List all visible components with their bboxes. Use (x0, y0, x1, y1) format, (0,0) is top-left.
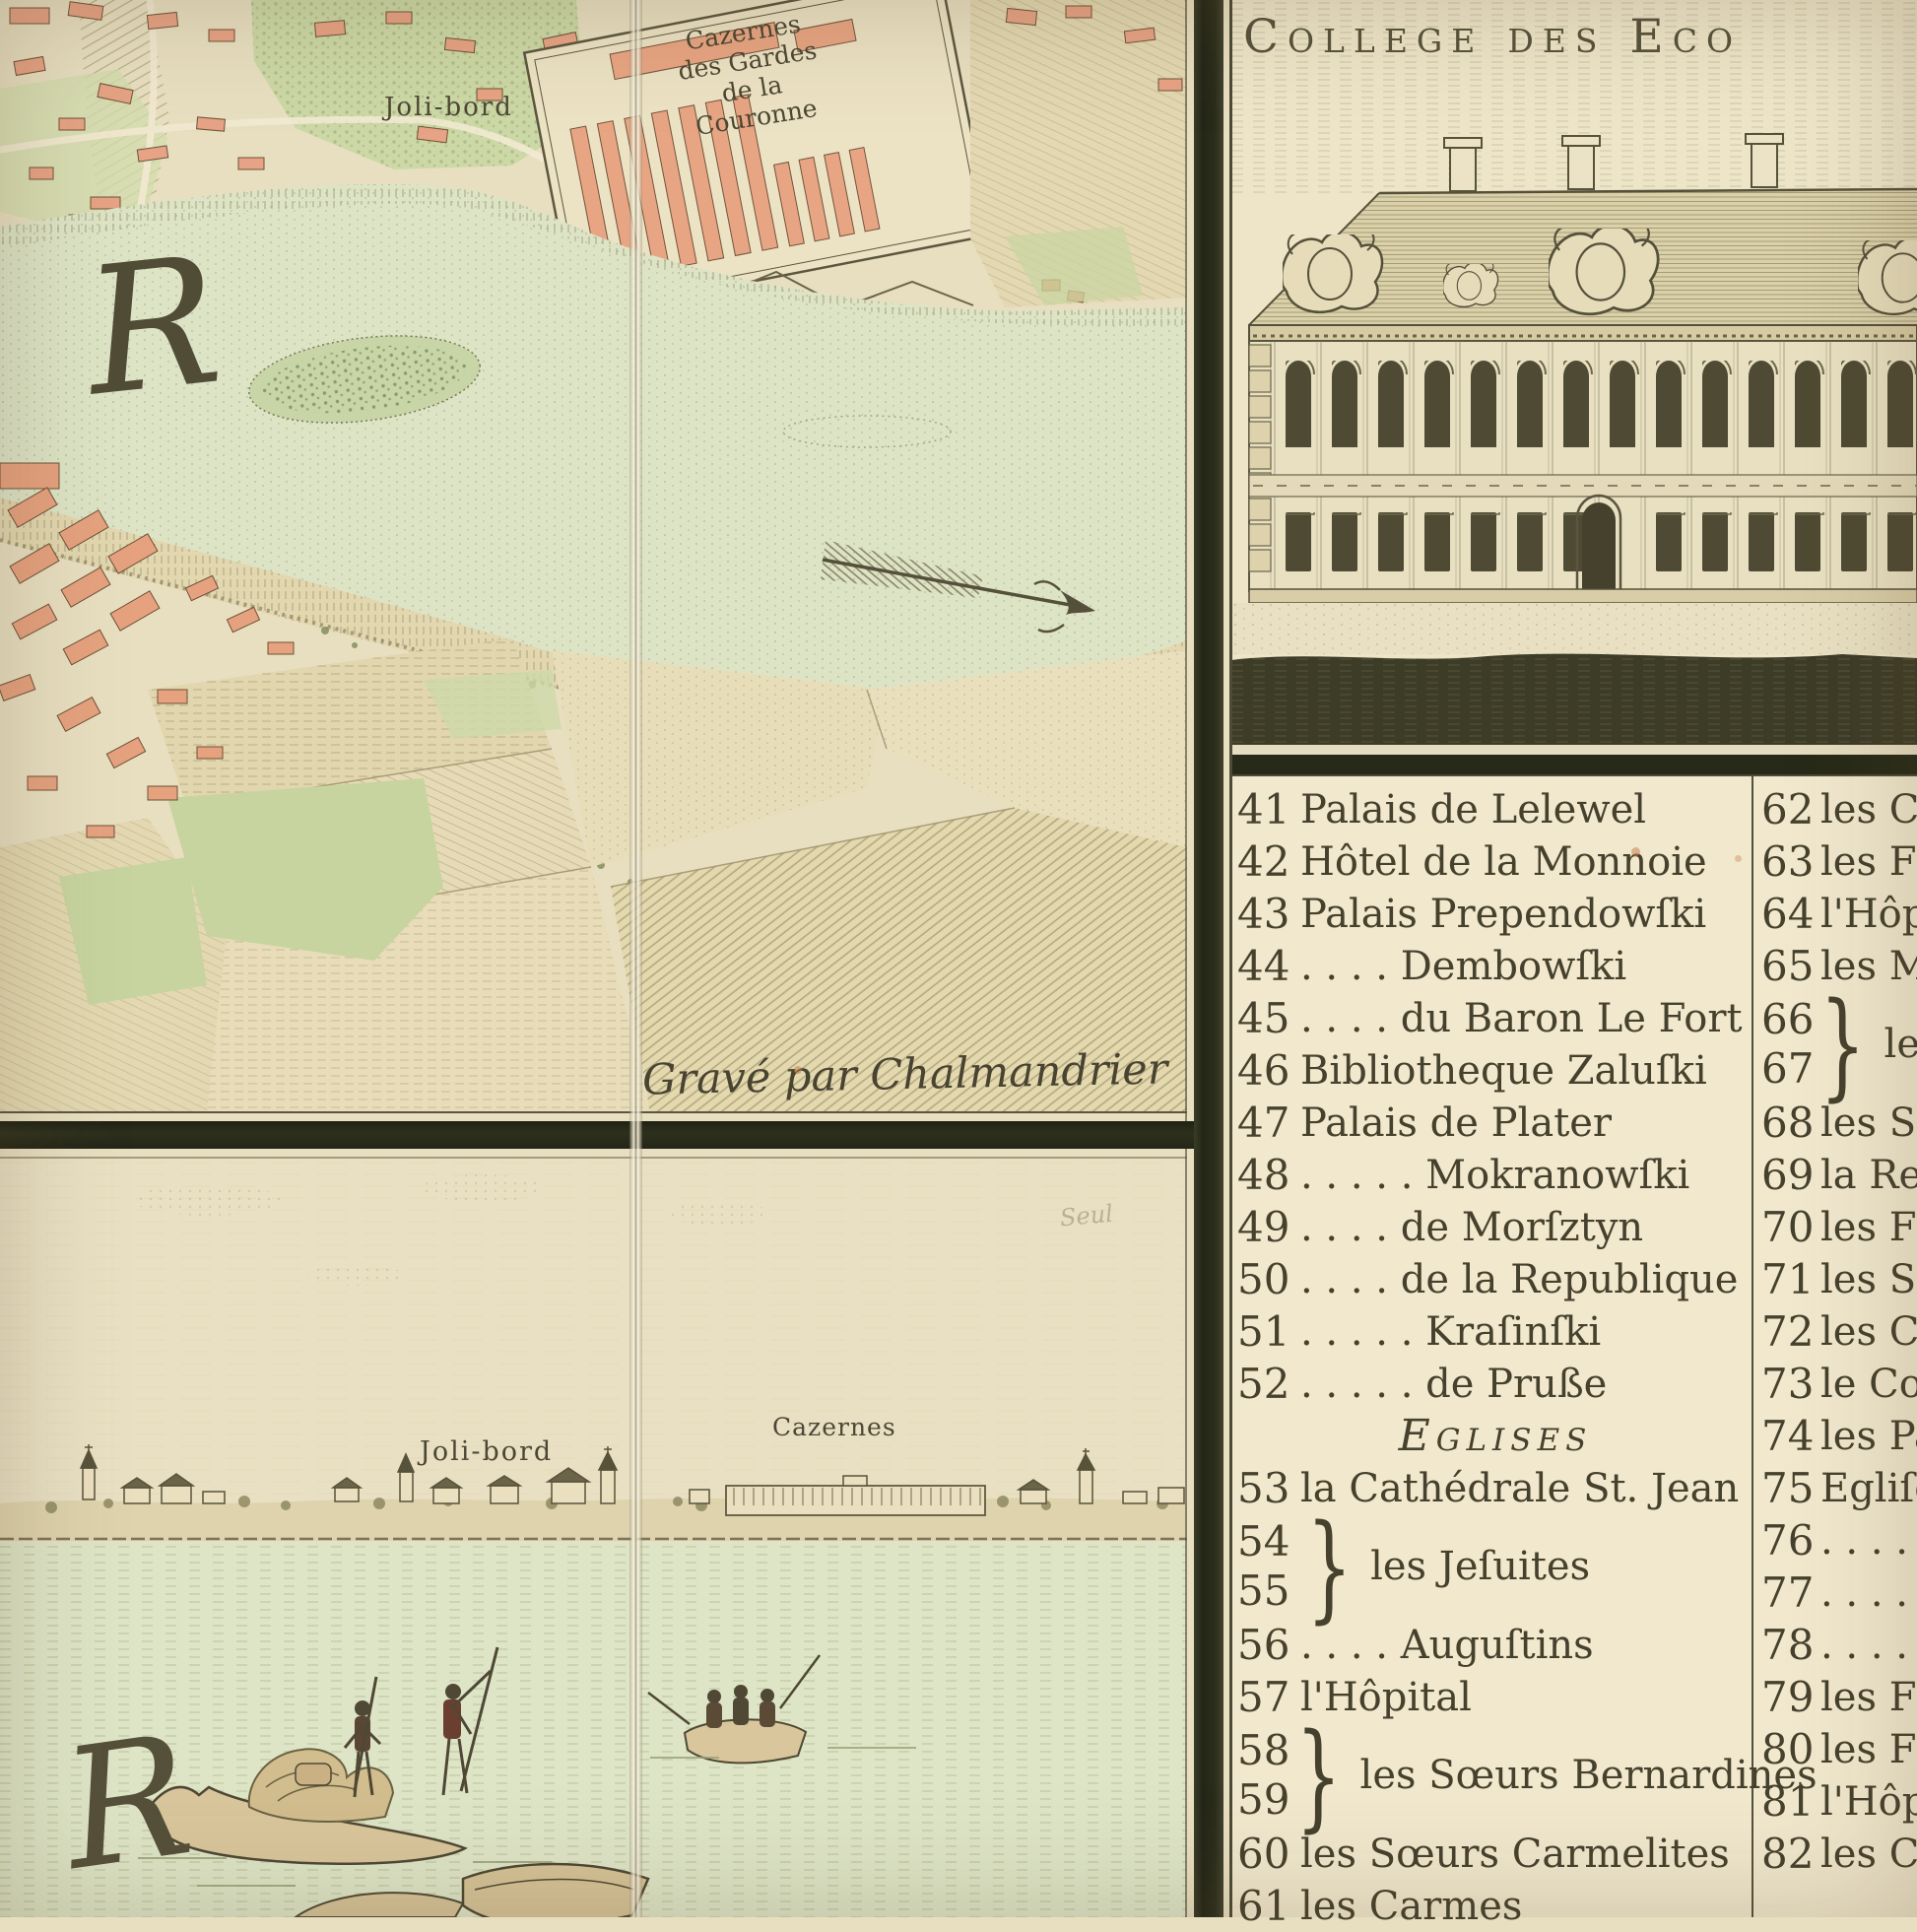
legend-label: Palais de Plater (1300, 1100, 1612, 1146)
legend-number: 80 (1761, 1725, 1820, 1773)
map-right-frame-line (1185, 0, 1187, 1917)
legend-row: 77 . . . . (1761, 1566, 1917, 1619)
brace-glyph: } (1296, 1726, 1343, 1825)
legend-number: 71 (1761, 1255, 1820, 1303)
legend-row: 6667 } les F (1761, 992, 1917, 1097)
legend-label: . . . . du Baron Le Fort (1300, 996, 1743, 1041)
legend-row: 62 les C (1761, 783, 1917, 835)
legend-number: 73 (1761, 1360, 1820, 1408)
legend-row: 49 . . . . de Morſztyn (1237, 1201, 1753, 1253)
pencil-inscription: Seul (1059, 1200, 1114, 1232)
legend-label: Eglises (1399, 1411, 1593, 1461)
palace-engraving (1231, 0, 1917, 776)
central-door (1582, 502, 1616, 591)
legend-number: 82 (1761, 1830, 1820, 1878)
legend-right-column: 62 les C 63 les Fi 64 l'Hôpi 65 les M 66… (1761, 783, 1917, 1880)
right-panel-frame-line (1229, 0, 1232, 1917)
vertical-border-band (1194, 0, 1223, 1917)
river-initial-panorama: R (52, 1699, 203, 1907)
legend-number: 41 (1237, 785, 1300, 833)
legend-number: 46 (1237, 1046, 1300, 1095)
legend-number: 42 (1237, 837, 1300, 886)
legend-row: 73 le Co (1761, 1358, 1917, 1410)
legend-row: 78 . . . . (1761, 1619, 1917, 1671)
legend-number: 74 (1761, 1412, 1820, 1460)
legend-row: 41 Palais de Lelewel (1237, 783, 1753, 835)
panorama-top-line (0, 1157, 1187, 1159)
legend-label: les So (1820, 1257, 1917, 1302)
legend-row: 79 les Fr (1761, 1671, 1917, 1723)
legend-number-pair: 6667 (1761, 995, 1814, 1094)
legend-label: Bibliotheque Zaluſki (1300, 1048, 1707, 1094)
legend-row: 75 Egliſe (1761, 1462, 1917, 1514)
legend-number: 50 (1237, 1255, 1300, 1303)
legend-label: les F (1884, 1022, 1917, 1067)
legend-row: 69 la Re (1761, 1149, 1917, 1201)
legend-number: 81 (1761, 1777, 1820, 1826)
legend-label: les Jeſuites (1370, 1544, 1590, 1589)
legend-top-frame (1231, 774, 1917, 776)
legend-number: 79 (1761, 1673, 1820, 1721)
legend-row: 5455 } les Jeſuites (1237, 1514, 1753, 1619)
legend-row: 63 les Fi (1761, 835, 1917, 888)
legend-number-pair: 5859 (1237, 1726, 1289, 1825)
legend-number-pair: 5455 (1237, 1517, 1300, 1616)
river-initial-map: R (77, 219, 230, 435)
legend-row: 72 les Ca (1761, 1305, 1917, 1358)
legend-number: 72 (1761, 1307, 1820, 1356)
legend-label: l'Hôpi (1820, 892, 1917, 937)
legend-label: les F (1820, 1205, 1916, 1250)
legend-number: 76 (1761, 1516, 1820, 1565)
legend-number: 70 (1761, 1203, 1820, 1251)
city-map-engraving (0, 0, 1187, 1123)
legend-number: 44 (1237, 942, 1300, 990)
legend-label: les Sœurs Bernardines (1360, 1753, 1818, 1798)
legend-label: le Co (1820, 1362, 1917, 1407)
legend-label: . . . . (1820, 1623, 1908, 1668)
legend-label: . . . . de la Republique (1300, 1257, 1738, 1302)
legend-label: les Fi (1820, 839, 1917, 885)
legend-number: 69 (1761, 1151, 1820, 1199)
legend-row: 5859 } les Sœurs Bernardines (1237, 1723, 1753, 1828)
legend-number: 60 (1237, 1830, 1300, 1878)
cornice (1249, 325, 1917, 341)
legend-label: Egliſe (1820, 1466, 1917, 1511)
legend-row: 81 l'Hôpit (1761, 1775, 1917, 1828)
quoins (1249, 345, 1271, 571)
legend-number: 45 (1237, 994, 1300, 1042)
legend-left-column: 41 Palais de Lelewel 42 Hôtel de la Monn… (1237, 783, 1753, 1932)
legend-number: 77 (1761, 1568, 1820, 1617)
legend-number: 53 (1237, 1464, 1300, 1512)
map-sheet: { "palette": { "paper": "#e9dfc3", "lege… (0, 0, 1917, 1917)
legend-label: . . . . Dembowſki (1300, 944, 1626, 989)
legend-label: les Carmes (1300, 1884, 1522, 1929)
legend-number: 68 (1761, 1099, 1820, 1147)
legend-number: 47 (1237, 1099, 1300, 1147)
legend-row: 76 . . . . (1761, 1514, 1917, 1566)
legend-number: 49 (1237, 1203, 1300, 1251)
panorama-label-cazernes: Cazernes (772, 1413, 896, 1441)
panorama-label-joli-bord: Joli-bord (420, 1436, 553, 1467)
legend-label: les Fr (1820, 1727, 1917, 1772)
legend-label: . . . . . Kraſinſki (1300, 1309, 1601, 1355)
legend-number: 52 (1237, 1360, 1300, 1408)
legend-row: 44 . . . . Dembowſki (1237, 940, 1753, 992)
legend-row: 43 Palais Prependowſki (1237, 888, 1753, 940)
legend-row: 52 . . . . . de Pruße (1237, 1358, 1753, 1410)
legend-label: . . . . (1820, 1570, 1908, 1616)
legend-label: . . . . . Mokranowſki (1300, 1153, 1689, 1198)
legend-row: 50 . . . . de la Republique (1237, 1253, 1753, 1305)
legend-label: la Cathédrale St. Jean (1300, 1466, 1739, 1511)
legend-row: 61 les Carmes (1237, 1880, 1753, 1932)
legend-number: 63 (1761, 837, 1820, 886)
legend-row: 46 Bibliotheque Zaluſki (1237, 1044, 1753, 1097)
brace-glyph: } (1306, 1517, 1353, 1616)
legend-row: 82 les C (1761, 1828, 1917, 1880)
legend-row: 70 les F (1761, 1201, 1917, 1253)
legend-number: 75 (1761, 1464, 1820, 1512)
legend-number: 62 (1761, 785, 1820, 833)
legend-row: 51 . . . . . Kraſinſki (1237, 1305, 1753, 1358)
legend-number: 43 (1237, 890, 1300, 938)
legend-label: les Sœurs Carmelites (1300, 1832, 1730, 1877)
legend-number: 57 (1237, 1673, 1300, 1721)
legend-label: les C (1820, 1832, 1917, 1877)
legend-label: Palais de Lelewel (1300, 787, 1646, 833)
plinth (1249, 589, 1917, 603)
legend-number: 65 (1761, 942, 1820, 990)
legend-row: 45 . . . . du Baron Le Fort (1237, 992, 1753, 1044)
legend-row: 48 . . . . . Mokranowſki (1237, 1149, 1753, 1201)
legend-label: les Pa (1820, 1414, 1917, 1459)
legend-row: 64 l'Hôpi (1761, 888, 1917, 940)
legend-label: la Re (1820, 1153, 1917, 1198)
section-rule (1231, 755, 1917, 776)
horizontal-border-band (0, 1121, 1194, 1149)
legend-label: l'Hôpit (1820, 1779, 1917, 1825)
legend-label: . . . . (1820, 1518, 1908, 1564)
legend-label: les Fr (1820, 1675, 1917, 1720)
legend-number: 64 (1761, 890, 1820, 938)
legend-row: 80 les Fr (1761, 1723, 1917, 1775)
second-boat (463, 1864, 648, 1917)
legend-label: . . . . . de Pruße (1300, 1362, 1607, 1407)
map-bottom-frame-line (0, 1111, 1187, 1113)
legend-label: Palais Prependowſki (1300, 892, 1706, 937)
legend-row: 42 Hôtel de la Monnoie (1237, 835, 1753, 888)
legend-label: les C (1820, 787, 1917, 833)
legend-row: 74 les Pa (1761, 1410, 1917, 1462)
legend-number: 51 (1237, 1307, 1300, 1356)
legend-label: Hôtel de la Monnoie (1300, 839, 1707, 885)
brace-glyph: } (1820, 995, 1867, 1094)
legend-row: Eglises (1237, 1410, 1753, 1462)
legend-row: 47 Palais de Plater (1237, 1097, 1753, 1149)
forecourt (1231, 603, 1917, 654)
legend-label: les Ca (1820, 1309, 1917, 1355)
legend-row: 71 les So (1761, 1253, 1917, 1305)
legend-number: 48 (1237, 1151, 1300, 1199)
legend-number: 56 (1237, 1621, 1300, 1669)
legend-label: . . . . de Morſztyn (1300, 1205, 1643, 1250)
map-label-joli-bord: Joli-bord (384, 93, 513, 122)
panel-title: College des Eco (1243, 10, 1917, 64)
legend-number: 61 (1237, 1882, 1300, 1930)
legend-number: 78 (1761, 1621, 1820, 1669)
